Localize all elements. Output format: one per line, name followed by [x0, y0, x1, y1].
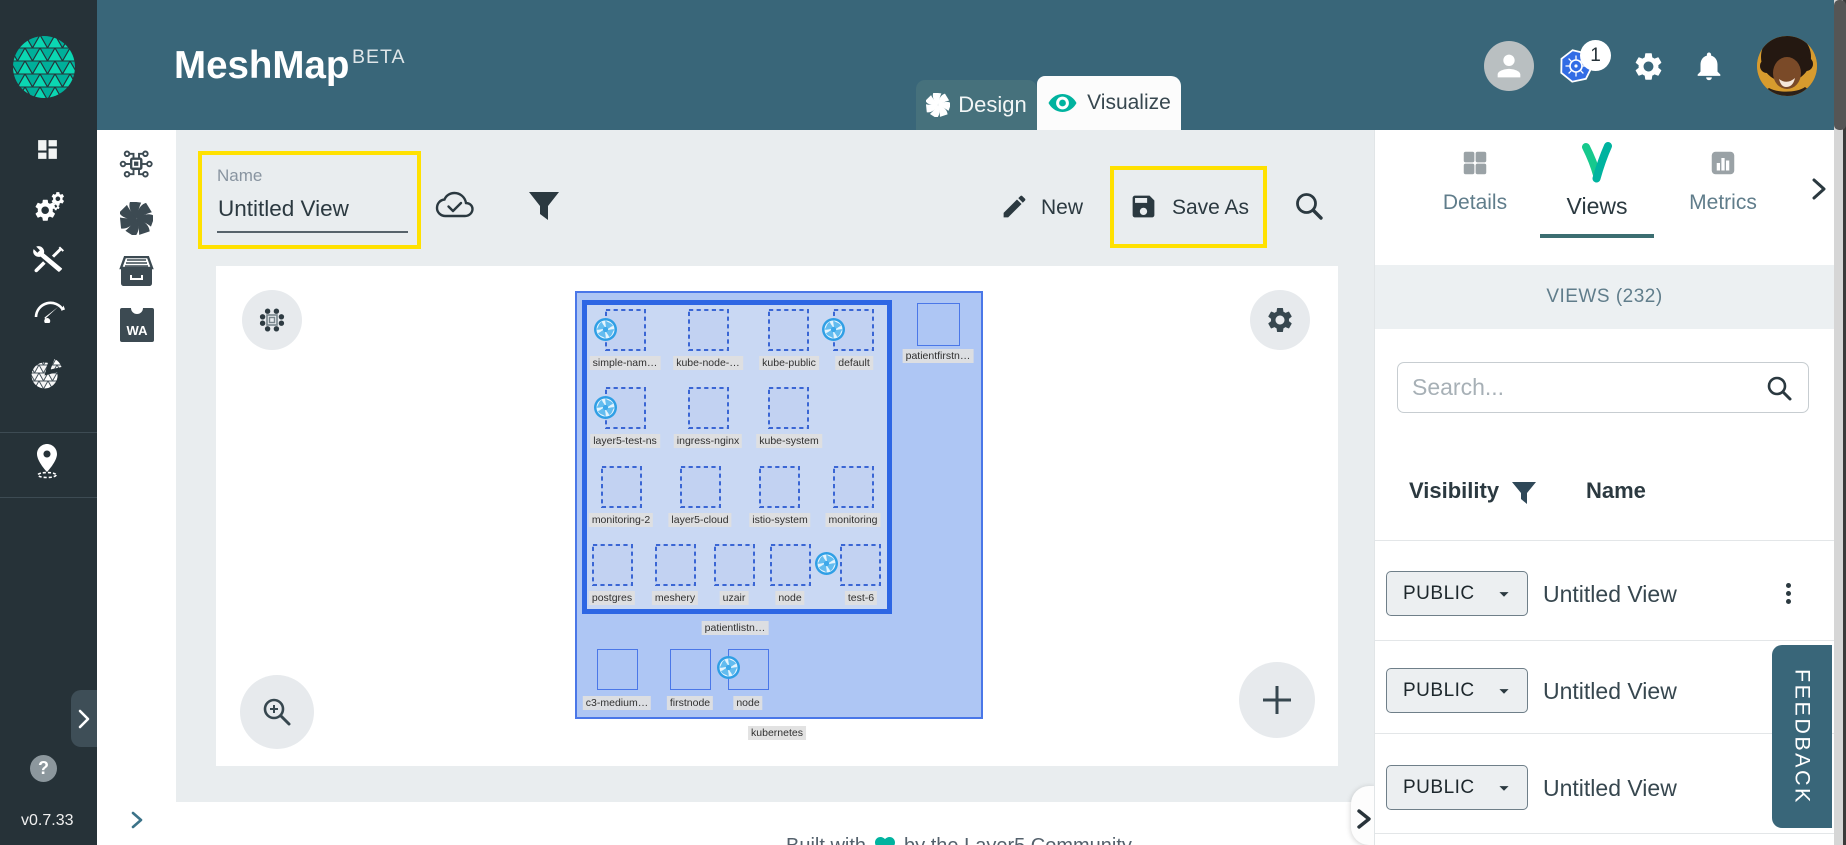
- svg-text:WA: WA: [127, 323, 149, 338]
